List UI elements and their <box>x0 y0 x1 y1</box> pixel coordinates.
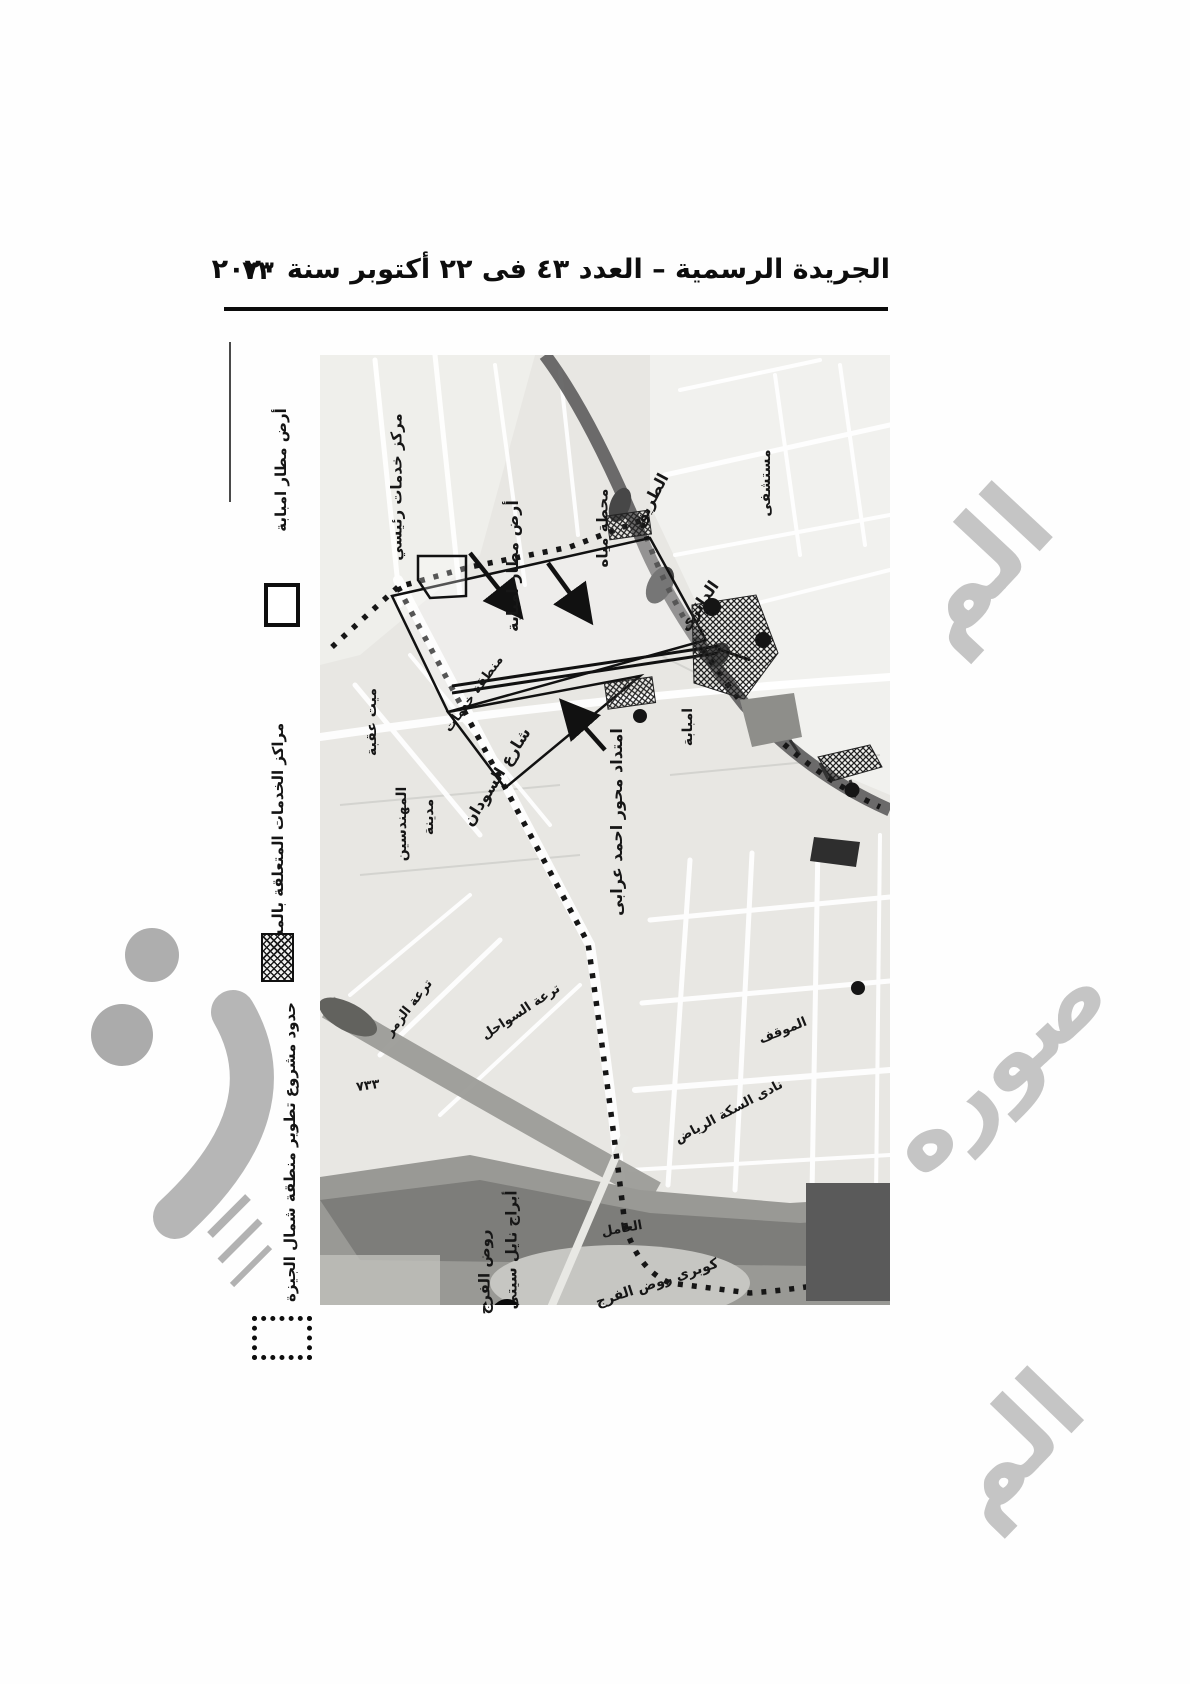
map-label-mit-okba: ميت عقبة <box>365 688 379 756</box>
margin-line <box>229 342 231 502</box>
legend-symbol-dotted-square <box>252 1316 312 1360</box>
map-label-main-service-center: مركز خدمات رئيسي <box>390 413 405 560</box>
map-label-water-station: محطة مياه <box>596 489 611 568</box>
page-number: ٧٣ <box>228 256 288 286</box>
legend-symbol-hatched-square <box>261 933 294 982</box>
map-label-hospital: مستشفى <box>759 449 773 516</box>
map-label-imbaba: امبابة <box>681 708 695 746</box>
map-label-mohandessin-1: مدينة <box>422 799 436 835</box>
legend-symbol-white-square <box>264 583 300 627</box>
map-label-733: ٧٣٣ <box>355 1078 380 1094</box>
page-title: الجريدة الرسمية – العدد ٤٣ فى ٢٢ أكتوبر … <box>330 254 890 285</box>
watermark-fragment: الم <box>872 461 1078 669</box>
watermark-fragment: الم <box>912 1346 1108 1543</box>
legend-item-airport-land: أرض مطار امبابة <box>272 408 290 531</box>
map-label-orabi-axis: امتداد محور احمد عرابى <box>609 728 625 916</box>
legend-item-project-boundary: حدود مشروع تطوير منطقة شمال الجيزة <box>281 1002 299 1302</box>
map-label-airport-land: أرض مطار امبابة <box>505 500 521 632</box>
header-rule <box>224 307 888 311</box>
map-label-rod-elfarag: روض الفرج <box>478 1229 493 1314</box>
map-label-nile-city-towers: أبراج نايل سيتى <box>505 1191 520 1310</box>
map-label-mohandessin-2: المهندسين <box>395 787 409 862</box>
watermark-fragment: صوره <box>860 934 1130 1197</box>
gazette-page: الجريدة الرسمية – العدد ٤٣ فى ٢٢ أكتوبر … <box>0 0 1190 1684</box>
